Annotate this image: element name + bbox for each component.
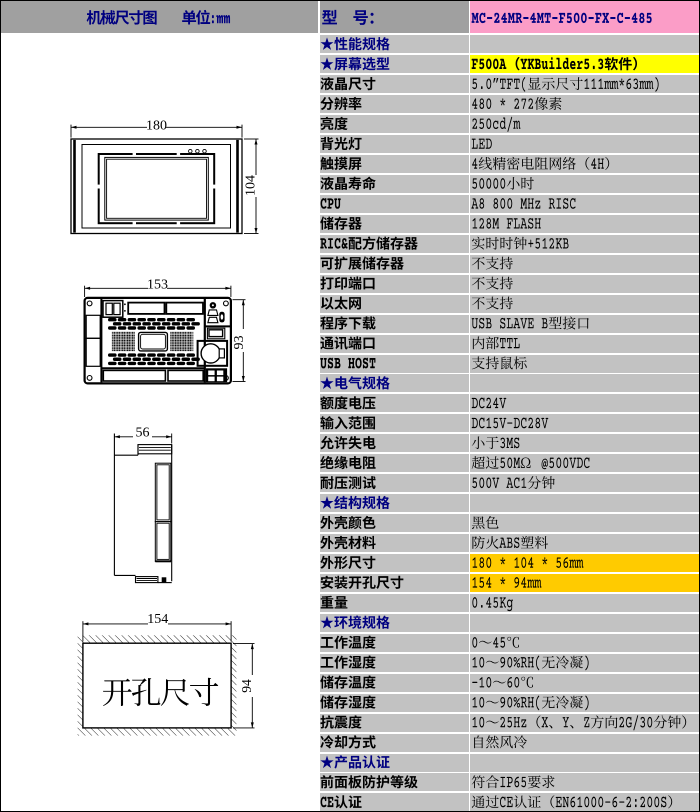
svg-text:180: 180 [146, 118, 167, 133]
svg-text:153: 153 [147, 277, 168, 292]
svg-text:93: 93 [232, 336, 247, 350]
svg-text:94: 94 [239, 679, 254, 693]
svg-text:56: 56 [136, 426, 150, 441]
svg-text:154: 154 [147, 612, 168, 627]
svg-text:104: 104 [244, 175, 259, 196]
